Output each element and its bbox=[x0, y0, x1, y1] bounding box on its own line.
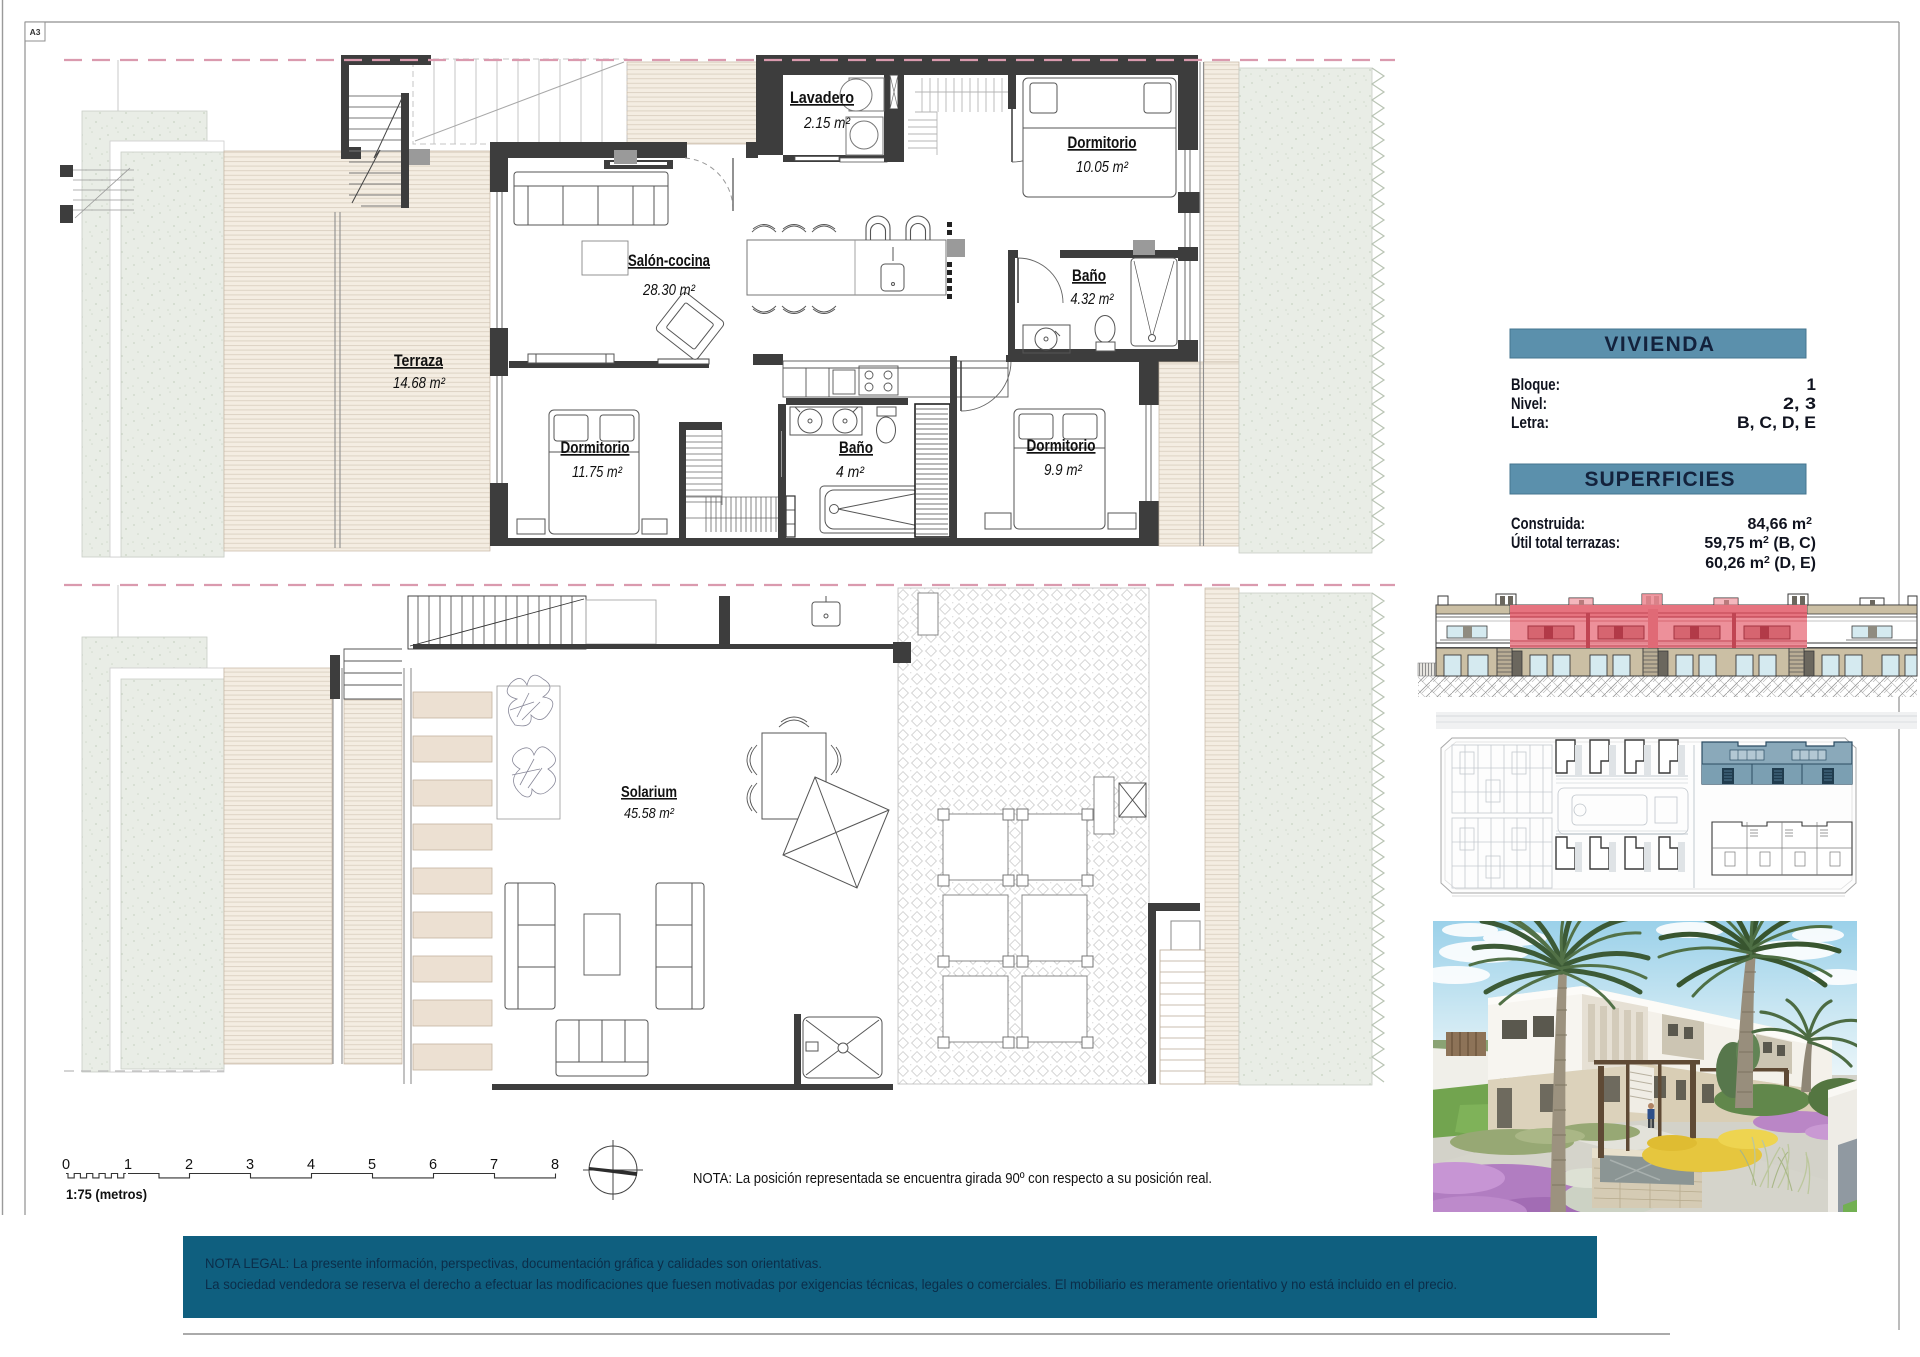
svg-text:Baño: Baño bbox=[839, 438, 873, 457]
svg-text:B, C, D, E: B, C, D, E bbox=[1737, 413, 1816, 432]
svg-text:2: 2 bbox=[185, 1157, 193, 1173]
svg-text:Letra:: Letra: bbox=[1511, 413, 1549, 432]
svg-text:Salón-cocina: Salón-cocina bbox=[628, 251, 710, 270]
svg-text:5: 5 bbox=[368, 1157, 376, 1173]
svg-text:Bloque:: Bloque: bbox=[1511, 375, 1560, 394]
svg-text:Nivel:: Nivel: bbox=[1511, 394, 1547, 413]
svg-text:1:75 (metros): 1:75 (metros) bbox=[66, 1186, 147, 1202]
svg-text:Dormitorio: Dormitorio bbox=[561, 438, 630, 457]
svg-text:28.30 m²: 28.30 m² bbox=[642, 282, 696, 299]
svg-text:Terraza: Terraza bbox=[394, 351, 443, 370]
svg-text:Dormitorio: Dormitorio bbox=[1068, 133, 1137, 152]
svg-text:60,26 m2 (D, E): 60,26 m2 (D, E) bbox=[1705, 554, 1816, 572]
svg-text:3: 3 bbox=[246, 1157, 254, 1173]
svg-text:4 m²: 4 m² bbox=[836, 464, 865, 481]
svg-text:NOTA: La posición representada: NOTA: La posición representada se encuen… bbox=[693, 1170, 1212, 1187]
svg-text:VIVIENDA: VIVIENDA bbox=[1604, 333, 1715, 356]
svg-text:45.58 m²: 45.58 m² bbox=[624, 806, 675, 822]
svg-text:SUPERFICIES: SUPERFICIES bbox=[1584, 468, 1735, 491]
svg-text:A3: A3 bbox=[30, 27, 41, 37]
svg-text:1: 1 bbox=[124, 1157, 132, 1173]
svg-text:4: 4 bbox=[307, 1157, 315, 1173]
svg-text:6: 6 bbox=[429, 1157, 437, 1173]
svg-text:59,75 m2 (B, C): 59,75 m2 (B, C) bbox=[1704, 534, 1816, 552]
svg-text:Construida:: Construida: bbox=[1511, 514, 1585, 533]
svg-text:La sociedad vendedora se reser: La sociedad vendedora se reserva el dere… bbox=[205, 1276, 1457, 1292]
svg-text:Solarium: Solarium bbox=[621, 784, 677, 801]
svg-text:Útil total terrazas:: Útil total terrazas: bbox=[1511, 533, 1620, 552]
svg-text:Baño: Baño bbox=[1072, 266, 1106, 285]
svg-text:8: 8 bbox=[551, 1157, 559, 1173]
svg-text:84,66 m2: 84,66 m2 bbox=[1747, 515, 1812, 533]
svg-text:10.05 m²: 10.05 m² bbox=[1076, 159, 1129, 176]
svg-text:7: 7 bbox=[490, 1157, 498, 1173]
svg-text:0: 0 bbox=[62, 1157, 70, 1173]
svg-text:2.15 m²: 2.15 m² bbox=[803, 115, 851, 132]
svg-text:1: 1 bbox=[1807, 375, 1816, 394]
svg-text:NOTA LEGAL: La presente inform: NOTA LEGAL: La presente información, per… bbox=[205, 1255, 822, 1271]
svg-text:4.32 m²: 4.32 m² bbox=[1071, 291, 1115, 308]
svg-text:11.75 m²: 11.75 m² bbox=[572, 464, 623, 481]
svg-text:Lavadero: Lavadero bbox=[790, 88, 854, 107]
svg-text:14.68 m²: 14.68 m² bbox=[393, 375, 446, 392]
svg-text:Dormitorio: Dormitorio bbox=[1027, 436, 1096, 455]
svg-text:9.9 m²: 9.9 m² bbox=[1044, 462, 1083, 479]
svg-text:2, 3: 2, 3 bbox=[1783, 394, 1816, 413]
